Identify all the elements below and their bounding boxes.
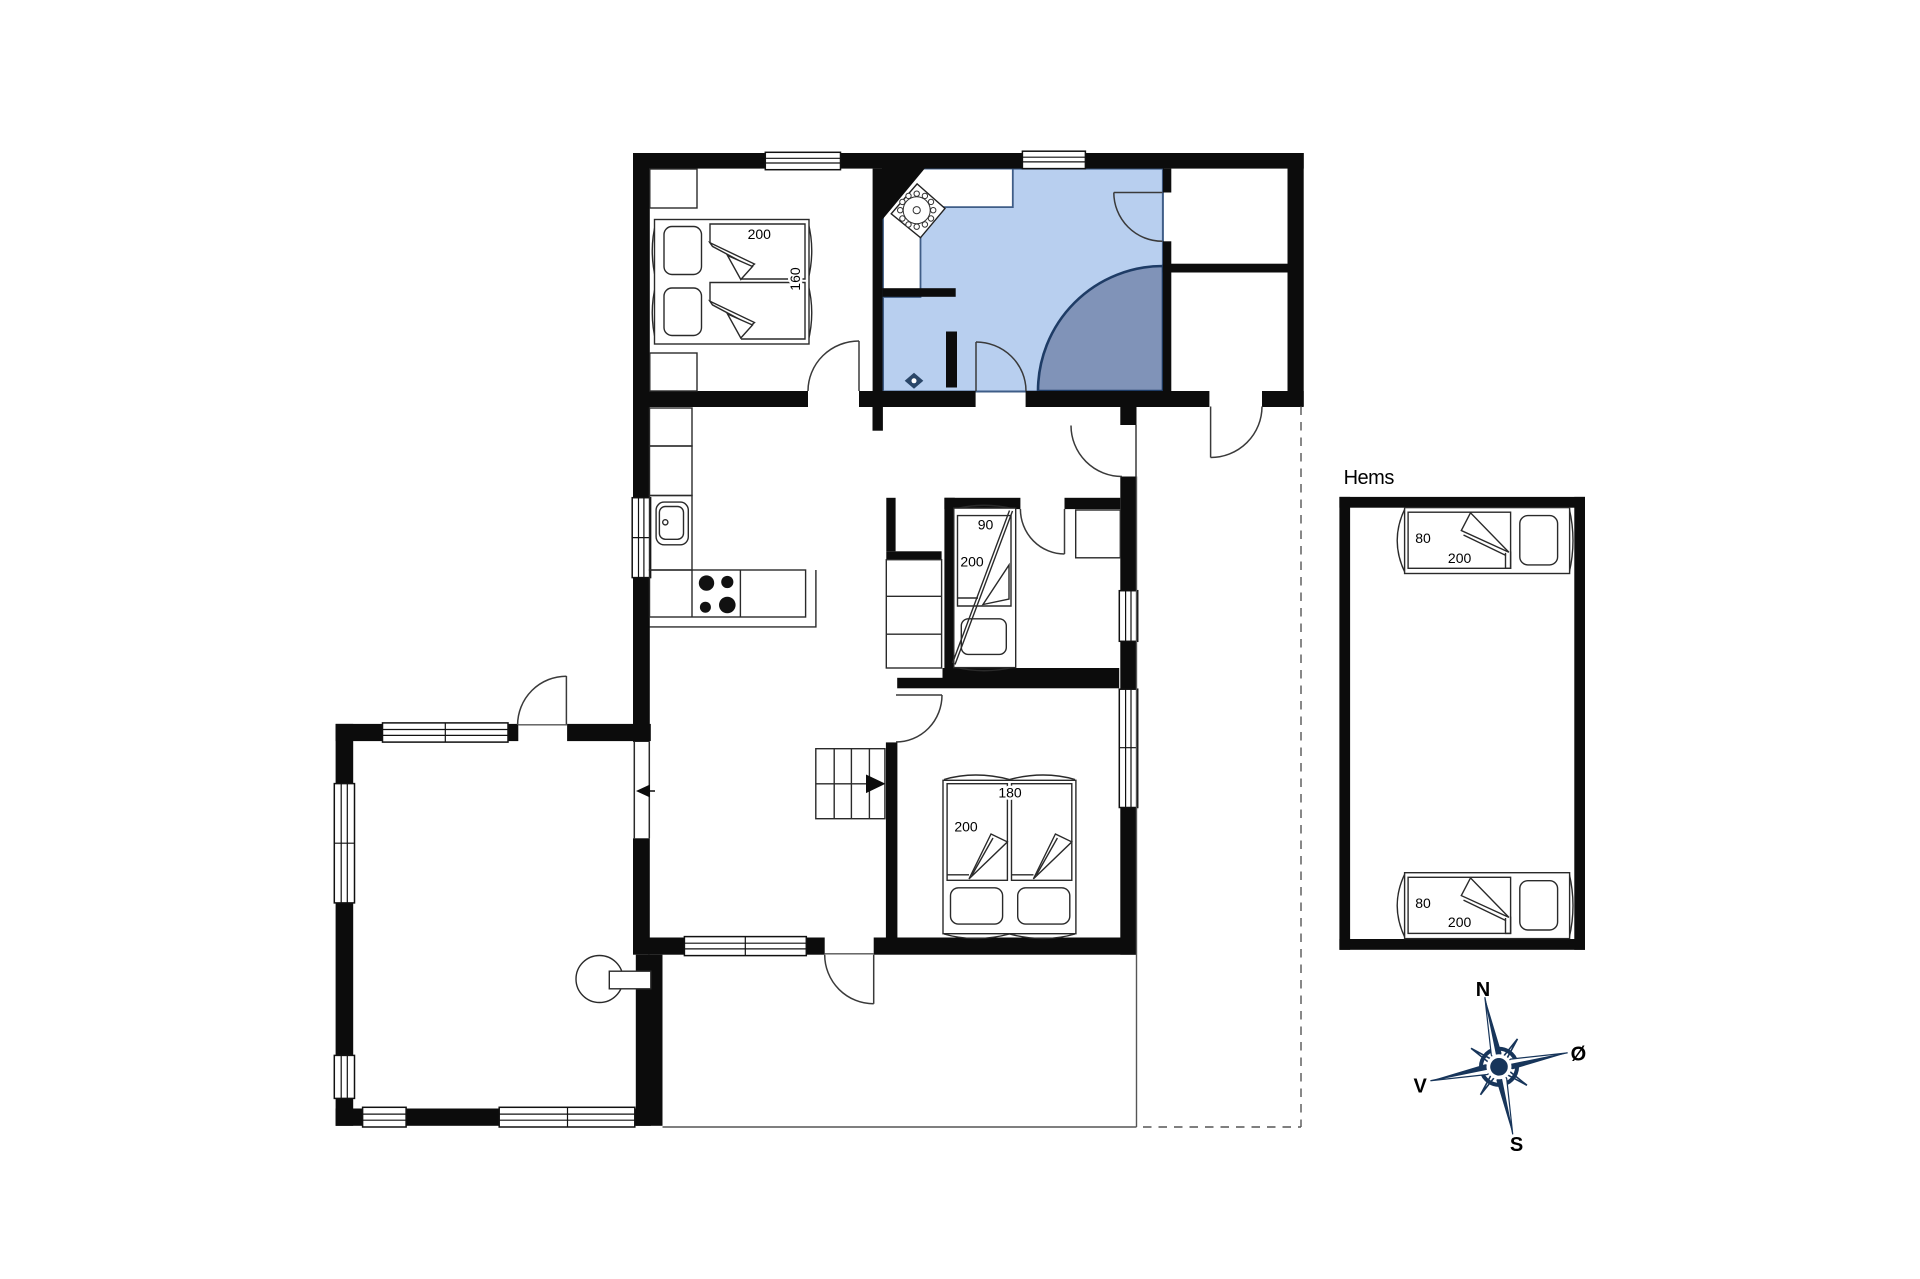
svg-text:200: 200 [954, 819, 978, 835]
svg-text:Ø: Ø [1571, 1044, 1587, 1066]
svg-text:200: 200 [1448, 914, 1472, 930]
svg-text:80: 80 [1415, 895, 1431, 911]
svg-text:S: S [1510, 1134, 1523, 1156]
svg-text:160: 160 [787, 267, 803, 291]
svg-text:V: V [1414, 1076, 1428, 1098]
svg-text:90: 90 [978, 517, 994, 533]
svg-text:80: 80 [1415, 530, 1431, 546]
svg-text:180: 180 [998, 785, 1022, 801]
svg-text:200: 200 [1448, 550, 1472, 566]
svg-text:200: 200 [748, 226, 772, 242]
svg-text:200: 200 [960, 554, 984, 570]
svg-text:N: N [1476, 979, 1490, 1001]
svg-text:Hems: Hems [1344, 467, 1395, 489]
